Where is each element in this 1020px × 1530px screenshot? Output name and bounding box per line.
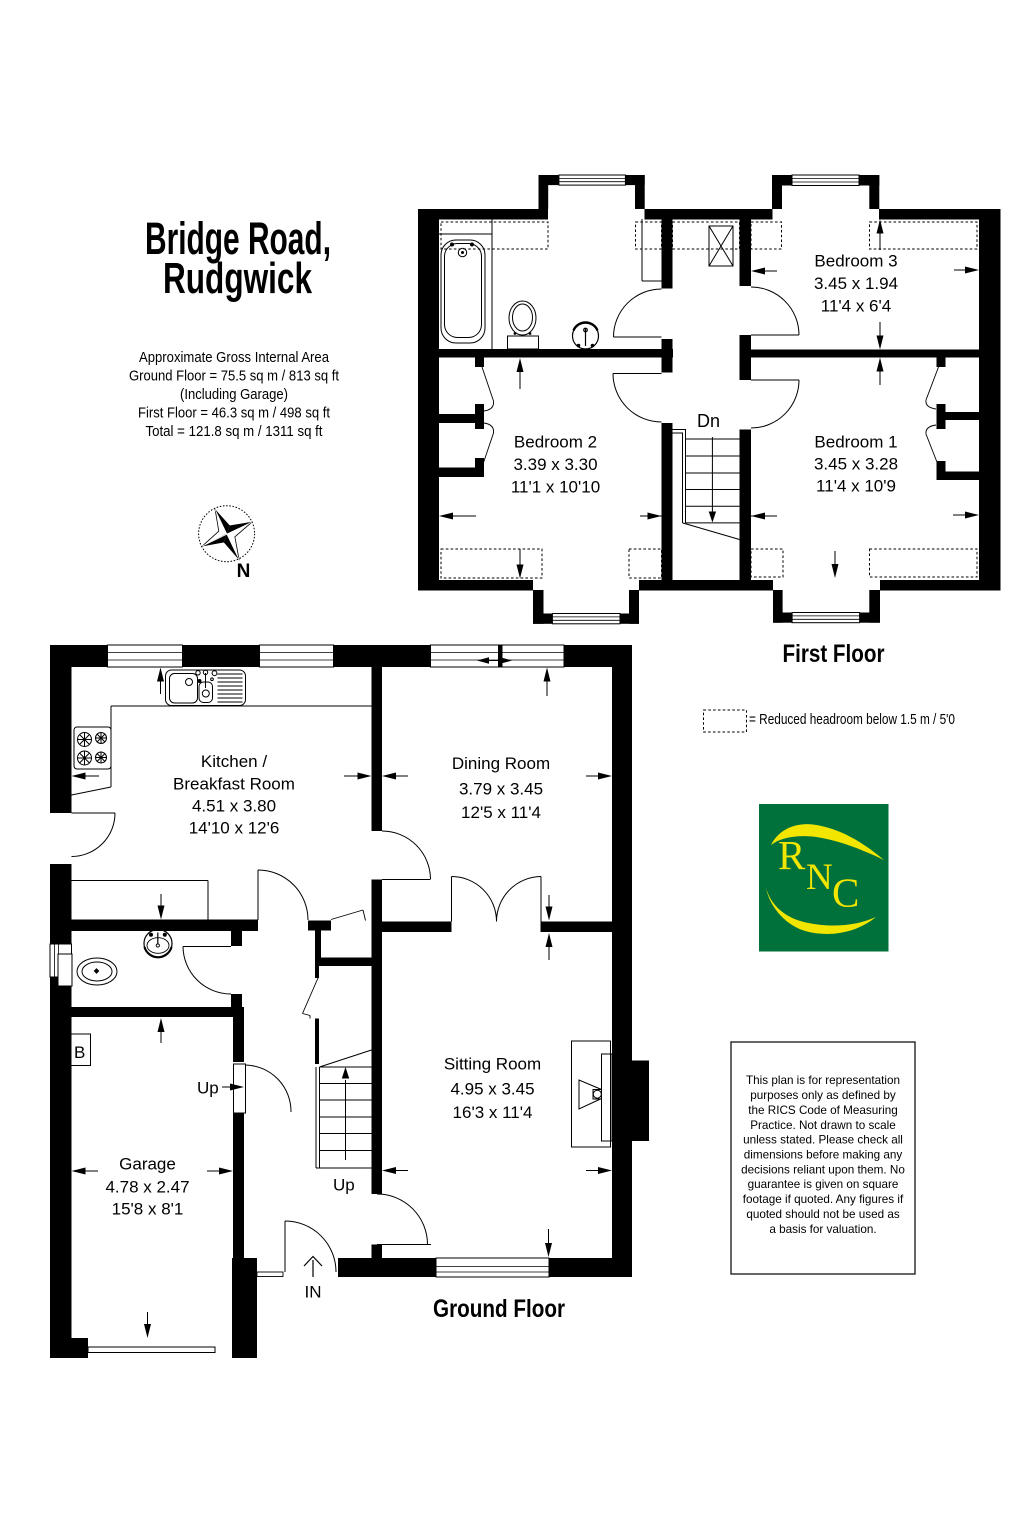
svg-text:Dn: Dn xyxy=(697,411,720,431)
svg-text:Bedroom 2: Bedroom 2 xyxy=(514,433,597,452)
svg-text:IN: IN xyxy=(305,1283,322,1302)
svg-text:First Floor = 46.3 sq m / 498: First Floor = 46.3 sq m / 498 sq ft xyxy=(138,406,330,422)
svg-text:Sitting Room: Sitting Room xyxy=(444,1055,541,1074)
svg-text:Bedroom 3: Bedroom 3 xyxy=(814,252,897,271)
svg-text:3.45 x 3.28: 3.45 x 3.28 xyxy=(814,455,898,474)
svg-text:4.78 x 2.47: 4.78 x 2.47 xyxy=(105,1178,189,1197)
svg-text:4.95 x 3.45: 4.95 x 3.45 xyxy=(450,1080,534,1099)
svg-text:Ground Floor: Ground Floor xyxy=(433,1295,565,1323)
svg-text:Bedroom 1: Bedroom 1 xyxy=(814,433,897,452)
svg-text:Up: Up xyxy=(333,1176,355,1195)
svg-text:Rudgwick: Rudgwick xyxy=(163,255,313,303)
svg-text:C: C xyxy=(832,870,859,916)
svg-text:16'3 x 11'4: 16'3 x 11'4 xyxy=(453,1103,533,1122)
svg-text:purposes only as defined by: purposes only as defined by xyxy=(750,1089,896,1102)
svg-text:Kitchen /: Kitchen / xyxy=(201,752,267,771)
svg-text:unless stated. Please check al: unless stated. Please check all xyxy=(743,1134,903,1147)
svg-text:decisions reliant upon them. N: decisions reliant upon them. No xyxy=(741,1163,905,1176)
svg-text:Practice. Not drawn to scale: Practice. Not drawn to scale xyxy=(750,1119,896,1132)
svg-text:quoted should not be used as: quoted should not be used as xyxy=(746,1208,900,1221)
svg-text:B: B xyxy=(74,1043,85,1062)
svg-text:First Floor: First Floor xyxy=(783,640,885,668)
svg-text:11'4 x 10'9: 11'4 x 10'9 xyxy=(816,477,896,496)
svg-text:3.79 x 3.45: 3.79 x 3.45 xyxy=(459,780,543,799)
svg-text:a basis for valuation.: a basis for valuation. xyxy=(769,1223,876,1236)
svg-text:N: N xyxy=(237,561,251,582)
svg-text:12'5 x 11'4: 12'5 x 11'4 xyxy=(461,803,541,822)
svg-text:Approximate Gross Internal Are: Approximate Gross Internal Area xyxy=(139,350,330,366)
svg-text:Total = 121.8 sq m / 1311 sq f: Total = 121.8 sq m / 1311 sq ft xyxy=(146,424,323,440)
svg-text:guarantee is given on square: guarantee is given on square xyxy=(748,1178,899,1191)
svg-text:11'4 x 6'4: 11'4 x 6'4 xyxy=(821,297,891,316)
svg-text:Dining Room: Dining Room xyxy=(452,754,550,773)
svg-text:3.39 x 3.30: 3.39 x 3.30 xyxy=(513,455,597,474)
svg-text:R: R xyxy=(778,832,806,878)
svg-text:(Including Garage): (Including Garage) xyxy=(180,387,288,403)
svg-text:= Reduced headroom below 1.5: = Reduced headroom below 1.5 m / 5'0 xyxy=(749,711,955,728)
svg-text:This plan is for representatio: This plan is for representation xyxy=(746,1074,900,1087)
svg-text:14'10 x 12'6: 14'10 x 12'6 xyxy=(189,819,280,838)
svg-text:3.45 x 1.94: 3.45 x 1.94 xyxy=(814,274,898,293)
svg-text:the RICS Code of Measuring: the RICS Code of Measuring xyxy=(748,1104,897,1117)
svg-text:Ground Floor = 75.5 sq m / 813: Ground Floor = 75.5 sq m / 813 sq ft xyxy=(129,369,339,385)
svg-text:footage if quoted. Any figures: footage if quoted. Any figures if xyxy=(743,1193,904,1206)
svg-text:dimensions before making any: dimensions before making any xyxy=(744,1149,903,1162)
svg-text:Up: Up xyxy=(197,1079,219,1098)
svg-text:15'8 x 8'1: 15'8 x 8'1 xyxy=(112,1200,184,1219)
svg-text:Garage: Garage xyxy=(119,1155,176,1174)
svg-text:Breakfast Room: Breakfast Room xyxy=(173,775,295,794)
svg-text:N: N xyxy=(806,857,833,898)
svg-text:4.51 x 3.80: 4.51 x 3.80 xyxy=(192,797,276,816)
svg-text:11'1 x 10'10: 11'1 x 10'10 xyxy=(511,478,600,497)
